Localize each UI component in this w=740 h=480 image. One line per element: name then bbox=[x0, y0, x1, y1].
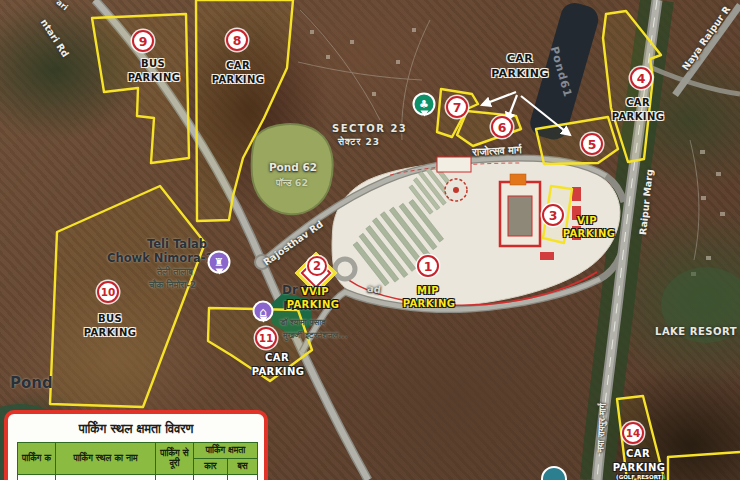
zone-1-marker: 1 bbox=[417, 255, 439, 277]
pond-62-label-hi: पॉन्ड 62 bbox=[276, 177, 308, 189]
zone-6-marker: 6 bbox=[491, 116, 513, 138]
teli-talab-label-line1: Teli Talab bbox=[147, 237, 207, 251]
zone-15-partial-boundary bbox=[668, 452, 740, 480]
zone-14-label-line3: (GOLF RESORT) bbox=[616, 474, 664, 480]
dr-mukherjee-label-hi1: डॉ श्यामा प्रसाद bbox=[280, 317, 325, 328]
teli-talab-label-hi1: तेली तालाब bbox=[157, 267, 193, 278]
zone-4-marker: 4 bbox=[630, 67, 652, 89]
zone-11-marker: 11 bbox=[255, 327, 277, 349]
zone-9-label-line2: PARKING bbox=[128, 72, 181, 83]
zone-1-label-line2: PARKING bbox=[403, 298, 456, 309]
capacity-table: पार्किंग क पार्किंग स्थल का नाम पार्किंग… bbox=[17, 442, 258, 480]
zone-14-label-line1: CAR bbox=[626, 448, 650, 459]
empty-cell bbox=[228, 474, 258, 480]
road-label-fragment-bottom: ad bbox=[366, 283, 381, 296]
zone-10-marker: 10 bbox=[97, 281, 119, 303]
capacity-col-bus: बस bbox=[228, 458, 258, 474]
zone-4-label-line2: PARKING bbox=[612, 111, 665, 122]
empty-cell bbox=[156, 474, 194, 480]
zone-8-label-line2: PARKING bbox=[212, 74, 265, 85]
zone-10-boundary bbox=[50, 186, 205, 407]
zone-7-marker: 7 bbox=[446, 96, 468, 118]
zone-11-label-line1: CAR bbox=[265, 352, 289, 363]
capacity-col-capacity: पार्किंग क्षमता bbox=[194, 443, 258, 459]
empty-cell bbox=[18, 474, 56, 480]
pond-62-label-en: Pond 62 bbox=[269, 161, 317, 173]
zone-3-label-line1: VIP bbox=[577, 215, 597, 226]
zone-2-marker: 2 bbox=[307, 256, 327, 276]
road-label-rajotsav-marg-hindi: राजोत्सव मार्ग bbox=[472, 143, 522, 159]
zone-2-label-line1: VVIP bbox=[301, 286, 329, 297]
zone-3-marker: 3 bbox=[542, 204, 564, 226]
zone-10-label-line1: BUS bbox=[98, 313, 122, 324]
zone-4-label-line1: CAR bbox=[626, 97, 650, 108]
empty-cell bbox=[194, 474, 228, 480]
zone-9-label-line1: BUS bbox=[141, 58, 165, 69]
zone-8-label-line1: CAR bbox=[226, 60, 250, 71]
school-building-pin-icon: ⌂ bbox=[253, 301, 274, 322]
zone-5-marker: 5 bbox=[581, 133, 603, 155]
dr-mukherjee-label-hi2: मुखर्जी इंटरनेशनल... bbox=[283, 330, 348, 341]
car-parking-callout-line1: CAR bbox=[507, 52, 533, 65]
capacity-col-car: कार bbox=[194, 458, 228, 474]
sector-23-label-hi: सेक्टर 23 bbox=[338, 137, 380, 148]
zone-14-marker: 14 bbox=[622, 422, 644, 444]
zone-11-label-line2: PARKING bbox=[252, 366, 305, 377]
park-tree-pin-icon: ♣ bbox=[413, 93, 436, 116]
capacity-col-distance: पार्किंग से दूरी bbox=[156, 443, 194, 475]
monument-pin-icon: ♜ bbox=[208, 251, 231, 274]
zone-14-label-line2: PARKING bbox=[613, 462, 666, 473]
zone-9-marker: 9 bbox=[132, 30, 154, 52]
parking-capacity-card: पार्किंग स्थल क्षमता विवरण पार्किंग क पा… bbox=[4, 410, 268, 480]
sector-23-label-en: SECTOR 23 bbox=[332, 123, 407, 134]
map-canvas: ari ntari Rd Rajosthav Rd राजोत्सव मार्ग… bbox=[0, 0, 740, 480]
empty-cell bbox=[56, 474, 156, 480]
capacity-table-title: पार्किंग स्थल क्षमता विवरण bbox=[17, 421, 255, 437]
capacity-col-name: पार्किंग स्थल का नाम bbox=[56, 443, 156, 475]
pond-left-label: Pond bbox=[10, 374, 53, 392]
arrow-to-zone-7 bbox=[482, 92, 516, 105]
teli-talab-label-hi2: चौक निमोरा-2 bbox=[149, 280, 196, 291]
capacity-empty-row bbox=[18, 474, 258, 480]
zone-3-label-line2: PARKING bbox=[563, 228, 616, 239]
satellite-map-svg bbox=[0, 0, 740, 480]
zone-1-label-line1: MIP bbox=[417, 285, 439, 296]
zone-2-label-line2: PARKING bbox=[287, 299, 340, 310]
lake-resort-label: LAKE RESORT bbox=[655, 326, 737, 337]
car-parking-callout-line2: PARKING bbox=[491, 67, 549, 80]
teli-talab-label-line2: Chowk Nimora-2 bbox=[107, 251, 213, 265]
capacity-col-serial: पार्किंग क bbox=[18, 443, 56, 475]
zone-8-marker: 8 bbox=[226, 29, 248, 51]
zone-10-label-line2: PARKING bbox=[84, 327, 137, 338]
